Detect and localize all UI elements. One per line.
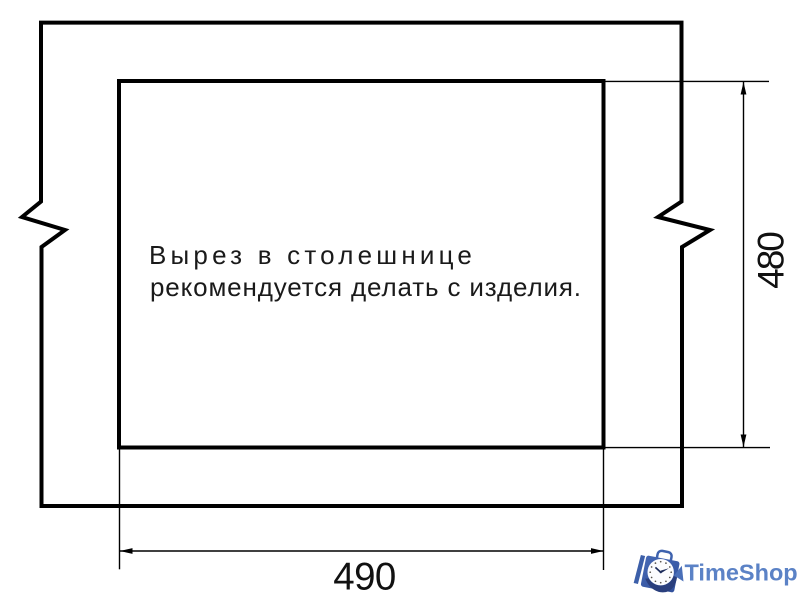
svg-text:480: 480 bbox=[750, 232, 791, 289]
svg-text:Вырез в столешнице: Вырез в столешнице bbox=[149, 240, 476, 270]
svg-text:490: 490 bbox=[333, 556, 395, 599]
svg-text:рекомендуется делать с изделия: рекомендуется делать с изделия. bbox=[150, 272, 582, 302]
svg-text:TimeShop: TimeShop bbox=[685, 560, 798, 586]
